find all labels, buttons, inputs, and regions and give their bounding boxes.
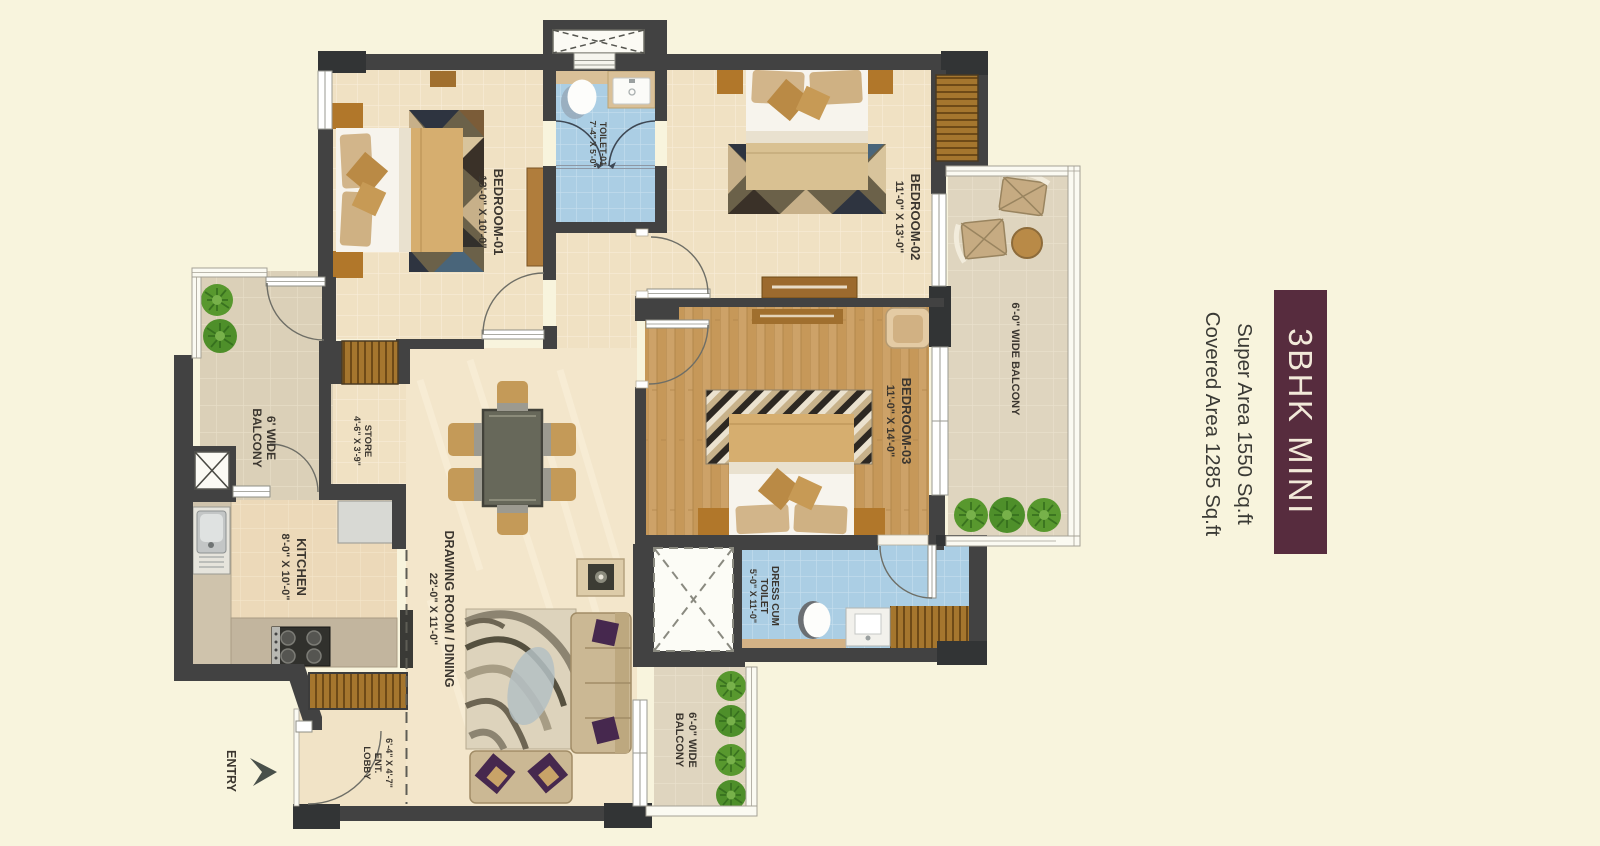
svg-text:11'-0" X 13'-0": 11'-0" X 13'-0" — [893, 181, 905, 254]
svg-text:Covered Area 1285 Sq.ft: Covered Area 1285 Sq.ft — [1201, 312, 1224, 537]
svg-text:ENT.: ENT. — [372, 753, 383, 774]
svg-text:LOBBY: LOBBY — [361, 746, 372, 780]
svg-text:BEDROOM-03: BEDROOM-03 — [899, 378, 914, 465]
svg-text:STORE: STORE — [362, 425, 373, 458]
svg-text:8'-0" X 10'-0": 8'-0" X 10'-0" — [279, 533, 291, 600]
svg-text:6'-0" WIDE BALCONY: 6'-0" WIDE BALCONY — [1009, 303, 1021, 417]
svg-text:22'-0" X 11'-0": 22'-0" X 11'-0" — [427, 573, 439, 646]
svg-text:6' WIDE: 6' WIDE — [264, 416, 278, 460]
svg-text:BEDROOM-01: BEDROOM-01 — [491, 169, 506, 256]
svg-text:7'-4" X 5'-0": 7'-4" X 5'-0" — [588, 120, 598, 167]
svg-text:BALCONY: BALCONY — [673, 713, 685, 768]
svg-text:13'-0" X 10'-0": 13'-0" X 10'-0" — [476, 175, 488, 248]
svg-text:DRESS CUM: DRESS CUM — [769, 566, 780, 626]
svg-text:6'-4" X 4'-7": 6'-4" X 4'-7" — [384, 738, 394, 788]
svg-text:KITCHEN: KITCHEN — [294, 538, 309, 596]
svg-text:3BHK MINI: 3BHK MINI — [1282, 328, 1319, 516]
svg-text:11'-0" X 14'-0": 11'-0" X 14'-0" — [884, 385, 896, 458]
svg-text:BEDROOM-02: BEDROOM-02 — [908, 174, 923, 261]
svg-text:6'-0" WIDE: 6'-0" WIDE — [686, 712, 698, 768]
svg-text:BALCONY: BALCONY — [250, 408, 264, 467]
svg-text:ENTRY: ENTRY — [224, 750, 238, 793]
svg-text:TOILET: TOILET — [758, 578, 769, 613]
svg-text:5'-0" X 11'-0": 5'-0" X 11'-0" — [748, 569, 758, 623]
svg-text:4'-6" X 3'-9": 4'-6" X 3'-9" — [352, 416, 362, 466]
svg-text:DRAWING ROOM / DINING: DRAWING ROOM / DINING — [442, 531, 456, 688]
svg-text:TOILET-01: TOILET-01 — [598, 122, 608, 166]
svg-text:Super Area 1550 Sq.ft: Super Area 1550 Sq.ft — [1233, 323, 1256, 525]
